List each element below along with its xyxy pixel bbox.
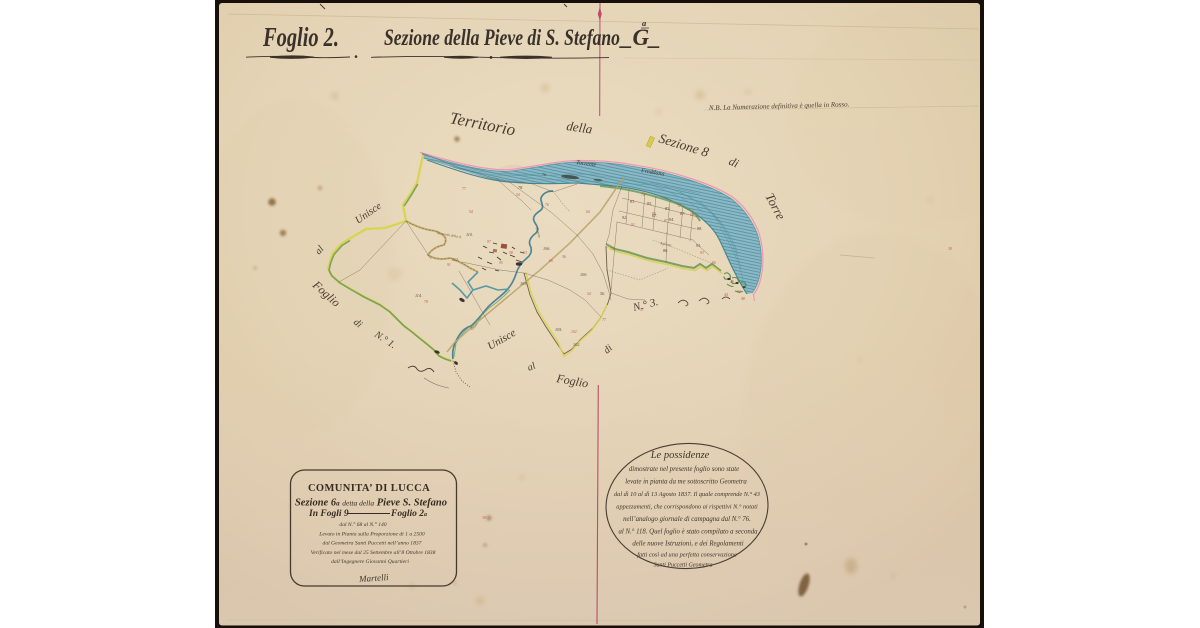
svg-text:71: 71 [609, 185, 613, 189]
svg-text:al N.° 118. Quel foglio è stat: al N.° 118. Quel foglio è stato compilat… [618, 529, 758, 536]
svg-text:54: 54 [469, 210, 473, 214]
svg-text:102.: 102. [573, 342, 580, 347]
svg-text:54: 54 [587, 292, 591, 296]
svg-text:72: 72 [677, 204, 681, 208]
svg-text:Foglio 2a: Foglio 2a [390, 509, 427, 519]
svg-text:87.: 87. [680, 211, 685, 216]
svg-text:93.: 93. [696, 243, 701, 248]
svg-text:Levato in Pianta sulla Proporz: Levato in Pianta sulla Proporzione di 1 … [318, 532, 425, 538]
svg-text:48: 48 [741, 297, 745, 301]
svg-text:96: 96 [712, 261, 716, 265]
svg-text:Verificato nel mese dal 25 Set: Verificato nel mese dal 25 Settembre all… [311, 549, 436, 556]
svg-text:93: 93 [700, 251, 704, 255]
svg-text:95.: 95. [647, 201, 652, 206]
svg-text:dal dì 10 al dì 13 Agosto 1837: dal dì 10 al dì 13 Agosto 1837. Il quale… [614, 491, 760, 498]
svg-text:94: 94 [690, 213, 694, 217]
svg-text:114.: 114. [415, 293, 422, 298]
svg-text:67.: 67. [652, 213, 657, 218]
svg-text:56: 56 [562, 255, 566, 259]
svg-text:95: 95 [499, 261, 503, 265]
svg-text:dall’Ingegnere Giovanni Quarti: dall’Ingegnere Giovanni Quartieri [331, 559, 409, 565]
svg-text:105.: 105. [555, 327, 562, 332]
svg-text:54: 54 [516, 193, 520, 197]
svg-text:39.: 39. [482, 516, 487, 520]
svg-text:76.: 76. [542, 172, 547, 177]
svg-text:dal N.° 68 al N.° 140: dal N.° 68 al N.° 140 [339, 521, 386, 528]
svg-text:76: 76 [545, 203, 549, 207]
svg-text:85.: 85. [665, 206, 670, 211]
svg-text:56.: 56. [600, 291, 605, 296]
svg-text:Santi Puccetti Geometra: Santi Puccetti Geometra [654, 563, 713, 569]
svg-text:92.: 92. [622, 215, 627, 220]
svg-text:delle nuove Istruzioni, e dei: delle nuove Istruzioni, e dei Regolament… [632, 541, 743, 548]
svg-text:92: 92 [631, 223, 635, 227]
svg-text:73: 73 [610, 247, 614, 251]
svg-text:appezzamenti, che corrispondon: appezzamenti, che corrispondono ai rispe… [616, 504, 758, 511]
svg-text:102: 102 [571, 330, 577, 334]
svg-text:78: 78 [424, 300, 428, 304]
svg-text:dimostrate nel presente foglio: dimostrate nel presente foglio sono stat… [629, 466, 739, 473]
svg-text:110.: 110. [466, 232, 473, 237]
svg-text:100.: 100. [580, 272, 587, 277]
svg-text:45: 45 [730, 280, 734, 284]
svg-text:86.: 86. [663, 248, 668, 253]
svg-text:106.: 106. [543, 246, 550, 251]
svg-text:Foglio 2.: Foglio 2. [262, 22, 339, 52]
svg-text:91: 91 [447, 263, 451, 267]
svg-text:112.: 112. [452, 257, 459, 262]
svg-text:78.: 78. [518, 185, 523, 190]
svg-text:38: 38 [948, 247, 952, 251]
svg-text:levate in pianta da me sottosc: levate in pianta da me sottoscritto Geom… [625, 479, 747, 486]
svg-text:88.: 88. [697, 226, 702, 231]
svg-text:Sezione della Pieve di S. Stef: Sezione della Pieve di S. Stefano [384, 25, 620, 50]
svg-text:dal Geometra Santi Puccetti ne: dal Geometra Santi Puccetti nell’anno 18… [323, 541, 422, 547]
svg-text:64: 64 [586, 210, 590, 214]
svg-text:49: 49 [470, 327, 474, 331]
svg-text:53: 53 [523, 251, 527, 255]
svg-text:75: 75 [641, 193, 645, 197]
svg-text:66: 66 [549, 259, 553, 263]
svg-text:Le possidenze: Le possidenze [650, 450, 710, 461]
svg-text:94.: 94. [669, 217, 674, 222]
svg-text:52: 52 [737, 290, 741, 294]
svg-text:In Fogli 9: In Fogli 9 [308, 509, 349, 519]
svg-text:44: 44 [724, 293, 728, 297]
svg-text:83.: 83. [630, 199, 635, 204]
svg-text:_G_: _G_ [619, 25, 661, 50]
svg-text:nell’analogo giornale di campa: nell’analogo giornale di campagna dal N.… [623, 516, 751, 523]
svg-text:fatti così ad una perfetta con: fatti così ad una perfetta conservazione [637, 552, 737, 559]
svg-text:103.: 103. [520, 281, 527, 286]
svg-text:Sezione 6a detta della Pieve S: Sezione 6a detta della Pieve S. Stefano [295, 498, 447, 509]
svg-text:58: 58 [509, 251, 513, 255]
svg-text:COMUNITA’ DI LUCCA: COMUNITA’ DI LUCCA [308, 483, 430, 494]
